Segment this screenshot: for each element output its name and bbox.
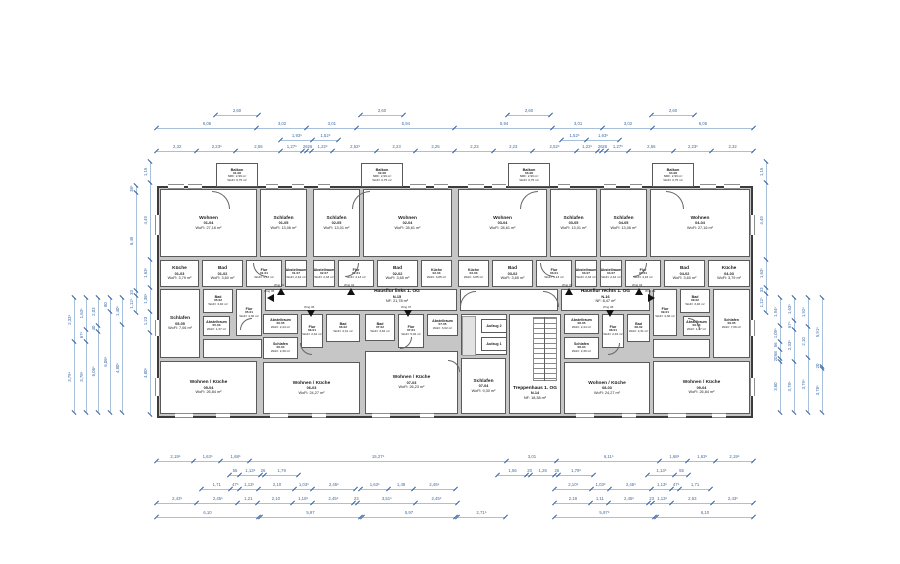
window [168,184,184,189]
elevator-shaft [462,316,476,356]
dimension-value: 1,63⁵ [786,298,795,320]
dimension-value: 1,40⁵ [114,298,123,324]
dimension-value: 2,25 [416,143,455,152]
dimension-chain: 1,12⁵336,4938⁵ [128,186,137,312]
dimension-value: 5,94 [455,120,553,129]
room-abstellraum-08-05: Abstellraum08-05WoFl: 2,44 m² [564,314,599,334]
dimension-value: 1,27⁵ [281,143,303,152]
window [700,184,716,189]
room-area-value: WoFl: 13,06 m² [271,226,297,231]
dimension-value: 1,38⁵ [142,287,151,311]
dimension-chain: 6,10 [157,509,258,518]
dimension-value: 1,79⁵ [559,467,593,476]
dimension-value: 1,03⁵ [295,481,313,490]
dimension-value: 3,01 [307,120,357,129]
dimension-value: 2,60 [361,107,403,116]
room-k-che-02-03: Küche02-03WoFl: 3,85 m² [421,260,452,287]
room-bad-08-02: Bad08-02WoFl: 4,31 m² [627,314,650,342]
dimension-value: 1,71 [202,481,231,490]
dimension-chain: 1,56201,26261,79⁵ [498,467,593,476]
room-area [653,339,710,358]
dimension-chain: 2,322,23⁵2,561,27⁵26261,22⁵2,52⁵2,232,25… [157,143,753,152]
dimension-value: 1,92⁵ [800,298,809,326]
room-area-value: WoFl: 1,37 m² [207,328,226,332]
dimension-value: 1,15 [758,162,767,182]
room-area-value: WoFl: 4,30 m² [655,315,674,319]
dimension-chain: 4,80⁵1,40⁵ [114,298,123,412]
dimension-value: 2,60 [508,107,550,116]
room-bad-01-02: Bad01-02WoFl: 3,60 m² [202,260,243,287]
window [312,413,326,418]
window [175,413,193,418]
hausflur-links [265,289,457,311]
entrance-triangle-icon [635,288,643,295]
dimension-value: 3,51⁵ [358,495,416,504]
dimension-value: 1,63⁵ [194,453,222,462]
room-area-value: WoFl: 2,33 m² [314,276,333,280]
dimension-value: 2,23⁵ [674,143,713,152]
dimension-chain: 1,13⁵55 [648,467,688,476]
room-wohnen-02-04: Wohnen02-04WoFl: 28,61 m² [363,189,452,257]
dimension-chain: 1,12⁵331,63⁵4,491,15 [758,162,767,312]
room-wohnen-k-che-08-03: Wohnen / Küche08-03WoFl: 24,27 m² [564,362,650,414]
dimension-chain: 2,10⁵1,03⁵2,45⁵1,13⁵47⁵1,71 [555,481,710,490]
room-area-value: WoFl: 3,85 m² [464,276,483,280]
window [576,413,594,418]
dimension-value: 1,13⁵ [652,481,672,490]
dimension-chain: 551,13⁵261,79 [230,467,298,476]
window [372,413,390,418]
dimension-value: 1,63⁵ [688,453,716,462]
entrance-label: Wng 04 [632,283,642,287]
room-area-value: WoFl: 24,27 m² [299,391,325,396]
balcony-02-08: Balkon02-08NRF: 2,99 m²WoFl: 0,75 m² [361,163,403,187]
dimension-value: 3,78⁵ [78,341,87,412]
window [188,184,202,189]
dimension-value: 2,45⁵ [414,481,455,490]
balcony-area: WoFl: 0,75 m² [663,179,682,183]
dimension-value: 2,03 [90,298,99,325]
room-area-value: WoFl: 3,85 m² [427,276,446,280]
dimension-value: 2,45⁵ [197,495,238,504]
dimension-value: 55 [675,467,688,476]
entrance-label: Wng 01 [274,283,284,287]
dimension-value: 80 [102,298,111,311]
room-bad-02-02: Bad02-02WoFl: 3,65 m² [377,260,418,287]
dimension-value: 6,05 [157,120,257,129]
window [292,184,304,189]
room-area-value: WoFl: 2,30 m² [271,350,290,354]
dimension-value: 2,56 [629,143,674,152]
dimension-value: 1,79 [265,467,298,476]
dimension-value: 3,02 [603,120,653,129]
entrance-triangle-icon [267,294,274,302]
window [492,184,506,189]
dimension-chain: 6,06⁵402,03 [90,298,99,412]
balcony-area: WoFl: 0,75 m² [372,179,391,183]
dimension-value: 5,97 [261,509,360,518]
dimension-value: 2,56 [236,143,281,152]
room-area-value: WoFl: 2,30 m² [572,350,591,354]
window [318,184,330,189]
entrance-triangle-icon [307,310,315,317]
room-k-che-01-03: Küche01-03WoFl: 3,79 m² [160,260,199,287]
dimension-chain: 1,7147⁵1,13⁵2,101,03⁵2,45⁵ [202,481,355,490]
room-area-value: WoFl: 13,01 m² [324,226,350,231]
room-abstellraum-02-07: Abstellraum02-07WoFl: 2,33 m² [313,260,335,287]
dimension-value: 1,18⁵ [293,495,313,504]
dimension-chain: 2,71⁵ [458,509,505,518]
dimension-value: 1,13⁵ [240,481,259,490]
window [750,215,755,235]
room-area-value: WoFl: 9,30 m² [472,389,496,394]
dimension-chain: 1,93⁵1,52⁵ [281,132,338,141]
dimension-value: 2,10⁵ [555,481,592,490]
dimension-value: 2,23 [377,143,416,152]
room-abstellraum-05-03: Abstellraum05-03WoFl: 1,37 m² [203,316,230,336]
room-area-value: WoFl: 2,44 m² [572,326,591,330]
room-area-value: WoFl: 4,13 m² [544,276,563,280]
dimension-value: 3,79⁵ [800,357,809,412]
dimension-chain: 6,10 [657,509,753,518]
dimension-value: 1,63⁵ [758,259,767,287]
window [270,413,288,418]
dimension-value: 6,10 [157,509,258,518]
dimension-value: 6,49 [128,192,137,290]
entrance-triangle-icon [277,288,285,295]
dimension-chain: 3,79⁵2,33⁵ [66,298,75,412]
room-bad-06-02: Bad06-02WoFl: 4,31 m² [326,314,360,342]
dimension-value: 1,52⁵ [313,132,338,141]
dimension-value: 1,68⁵ [660,453,688,462]
room-area-value: WoFl: 13,06 m² [611,226,637,231]
room-abstellraum-06-05: Abstellraum06-05WoFl: 2,44 m² [263,314,298,334]
dimension-value: 6,10 [657,509,753,518]
room-schlafen-05-05: Schlafen05-05WoFl: 7,06 m² [160,289,200,358]
window [630,184,642,189]
balcony-area: WoFl: 0,75 m² [227,179,246,183]
dimension-value: 5,97 [363,509,455,518]
room-area-value: WoFl: 3,40 m² [685,303,704,307]
room-abstellraum-04-07: Abstellraum04-07WoFl: 2,42 m² [600,260,622,287]
room-area-value: WoFl: 3,65 m² [386,276,410,281]
dimension-value: 2,52⁵ [333,143,377,152]
entrance-triangle-icon [606,310,614,317]
dimension-value: 2,10 [800,326,809,357]
dimension-value: 2,10 [258,495,293,504]
window [155,320,160,336]
dimension-value: 2,19⁵ [157,453,194,462]
dimension-value: 6,11⁵ [557,453,660,462]
room-wohnen-k-che-09-04: Wohnen / Küche09-04WoFl: 26,84 m² [653,361,750,414]
dimension-value: 2,60 [652,107,694,116]
dimension-value: 4,49 [758,182,767,259]
dimension-value: 2,33⁵ [786,329,795,361]
dimension-value: 2,60 [216,107,258,116]
dimension-value: 1,49 [389,481,414,490]
entrance-label: Wng 07 [401,305,411,309]
dimension-chain: 2,60 [652,107,694,116]
room-area-value: WoFl: 27,16 m² [687,226,713,231]
dimension-value: 1,52⁵ [562,132,587,141]
dimension-chain: 2,181,112,45⁵231,13⁵2,532,43⁵ [555,495,753,504]
dimension-value: 3,79⁵ [66,341,75,412]
entrance-label: Wng 09 [645,289,655,293]
balcony-01-08: Balkon01-08NRF: 2,99 m²WoFl: 0,75 m² [216,163,258,187]
dimension-value: 1,68⁵ [221,453,249,462]
dimension-value: 2,33⁵ [66,298,75,341]
dimension-value: 5,91⁵ [814,298,823,366]
balcony-03-08: Balkon03-08NRF: 2,99 m²WoFl: 0,75 m² [508,163,550,187]
window [668,413,686,418]
dimension-value: 2,43⁵ [713,495,753,504]
room-area-value: WoFl: 4,31 m² [629,330,648,334]
dimension-chain: 6,053,023,015,945,943,013,026,05 [157,120,753,129]
room-area-value: WoFl: 24,27 m² [594,391,620,396]
dimension-value: 1,63⁵ [78,298,87,329]
dimension-chain: 5,97 [363,509,455,518]
elevator-aufzug1: Aufzug 1 [481,337,507,351]
dimension-value: 3,78⁵ [814,368,823,412]
dimension-value: 5,97⁵ [555,509,654,518]
room-area-value: WoFl: 26,23 m² [399,385,425,390]
room-area-value: WoFl: 3,62 m² [370,330,389,334]
dimension-value: 3,01 [553,120,603,129]
room-area [203,339,262,358]
dimension-value: 1,12⁵ [128,295,137,312]
window [622,413,636,418]
dimension-value: 6,05 [653,120,753,129]
dimension-value: 1,56 [498,467,527,476]
dimension-value: 3,60 [772,361,781,412]
dimension-chain: 2,60 [508,107,550,116]
dimension-value: 3,02 [257,120,307,129]
dimension-value: 1,23 [142,311,151,332]
room-schlafen-03-05: Schlafen03-05WoFl: 13,01 m² [550,189,597,257]
dimension-chain: 1,63⁵1,492,45⁵ [361,481,455,490]
dimension-value: 1,03⁵ [592,481,610,490]
room-area-value: WoFl: 7,06 m² [722,326,741,330]
room-area-value: WoFl: 26,84 m² [689,390,715,395]
dimension-chain: 4,80⁵1,231,38⁵1,63⁵4,491,15 [142,162,151,414]
dimension-chain: 2,60 [361,107,403,116]
floor-plan-sheet: Wohnen01-04WoFl: 27,16 m²Schlafen01-05Wo… [0,0,900,564]
window [216,413,230,418]
dimension-value: 1,93⁵ [281,132,313,141]
window [712,413,726,418]
room-k-che-04-03: Küche04-03WoFl: 3,79 m² [708,260,750,287]
room-area-value: WoFl: 3,79 m² [168,276,192,281]
dimension-value: 15,27⁵ [250,453,507,462]
dimension-value: 1,27⁵ [607,143,629,152]
room-area-value: WoFl: 4,31 m² [333,330,352,334]
room-area-value: WoFl: 13,01 m² [561,226,587,231]
dimension-value: 1,09⁵ [772,326,781,341]
window [468,184,484,189]
window [750,378,755,396]
dimension-value: 4,80⁵ [114,324,123,412]
dimension-value: 1,13⁵ [648,467,675,476]
entrance-triangle-icon [565,288,573,295]
room-schlafen-01-05: Schlafen01-05WoFl: 13,06 m² [260,189,307,257]
dimension-value: 1,22⁵ [312,143,333,152]
window [604,184,616,189]
window [155,378,160,396]
balcony-area: WoFl: 0,75 m² [519,179,538,183]
elevator-aufzug2: Aufzug 2 [481,319,507,333]
balcony-04-08: Balkon04-08NRF: 2,99 m²WoFl: 0,75 m² [652,163,694,187]
window [266,184,278,189]
entrance-label: Wng 05 [264,289,274,293]
dimension-value: 6,06⁵ [90,331,99,412]
entrance-label: Wng 08 [603,305,613,309]
entrance-triangle-icon [347,288,355,295]
room-bad-07-02: Bad07-02WoFl: 3,62 m² [365,314,395,341]
dimension-chain: 3,78⁵67⁵1,63⁵ [78,298,87,412]
dimension-value: 3,01 [507,453,558,462]
dimension-value: 2,45⁵ [610,481,653,490]
dimension-value: 1,26 [531,467,555,476]
room-area-value: WoFl: 2,33 m² [576,276,595,280]
room-wohnen-k-che-07-03: Wohnen / Küche07-03WoFl: 26,23 m² [365,351,458,414]
dimension-value: 2,32 [712,143,752,152]
dimension-value: 1,22⁵ [577,143,598,152]
dimension-value: 2,10 [259,481,295,490]
room-area-value: WoFl: 3,40 m² [208,303,227,307]
room-bad-04-02: Bad04-02WoFl: 3,60 m² [664,260,705,287]
room-k-che-03-03: Küche03-03WoFl: 3,85 m² [458,260,489,287]
dimension-chain: 3,602068561,09⁵1,94⁵ [772,298,781,412]
dimension-chain: 3,78⁵205,91⁵ [814,298,823,412]
room-bad-09-02: Bad09-02WoFl: 3,40 m² [680,289,710,313]
room-area-value: WoFl: 28,61 m² [490,226,516,231]
room-schlafen-09-05: Schlafen09-05WoFl: 7,06 m² [713,289,750,358]
dimension-chain: 3,78⁵2,33⁵67⁵1,63⁵ [786,298,795,412]
room-schlafen-08-04: Schlafen08-04WoFl: 2,30 m² [564,337,599,359]
room-wohnen-k-che-05-04: Wohnen / Küche05-04WoFl: 26,84 m² [160,361,257,414]
room-area-value: WoFl: 2,42 m² [601,276,620,280]
dimension-value: 1,63⁵ [361,481,389,490]
dimension-value: 6,06⁵ [102,311,111,412]
dimension-chain: 2,43⁵2,45⁵1,212,101,18⁵2,45⁵233,51⁵2,45⁵ [157,495,457,504]
elevator-label: Aufzug 1 [486,342,501,346]
dimension-value: 1,15 [142,162,151,182]
room-area-value: WoFl: 3,79 m² [717,276,741,281]
dimension-value: 1,13⁵ [653,495,672,504]
dimension-value: 2,18 [555,495,591,504]
window [410,184,426,189]
dimension-value: 2,45⁵ [416,495,457,504]
room-area-value: WoFl: 2,42 m² [603,333,622,337]
room-bad-03-02: Bad03-02WoFl: 3,65 m² [492,260,533,287]
dimension-value: 4,80⁵ [142,332,151,414]
entrance-label: Wng 03 [562,283,572,287]
entrance-label: Wng 06 [304,305,314,309]
window [558,184,570,189]
room-abstellraum-03-07: Abstellraum03-07WoFl: 2,33 m² [575,260,597,287]
dimension-value: 1,63⁵ [142,259,151,287]
window [750,320,755,336]
window [434,184,448,189]
room-area-value: WoFl: 2,42 m² [286,276,305,280]
room-area-value: WoFl: 2,44 m² [271,326,290,330]
dimension-chain: 5,97⁵ [555,509,654,518]
stair-divider [544,317,545,381]
dimension-value: 2,19⁵ [716,453,753,462]
dimension-chain: 2,60 [216,107,258,116]
entrance-triangle-icon [404,310,412,317]
dimension-value: 1,13⁵ [240,467,261,476]
dimension-value: 1,12⁵ [758,293,767,312]
stair-flight [533,317,557,381]
room-bad-05-02: Bad05-02WoFl: 3,40 m² [203,289,233,313]
dimension-value: 2,52⁵ [533,143,577,152]
room-schlafen-06-04: Schlafen06-04WoFl: 2,30 m² [263,337,298,359]
dimension-chain: 5,97 [261,509,360,518]
room-area-value: WoFl: 3,02 m² [433,327,452,331]
room-area-value: WoFl: 7,06 m² [168,326,192,331]
room-area-value: WoFl: 3,60 m² [211,276,235,281]
room-wohnen-01-04: Wohnen01-04WoFl: 27,16 m² [160,189,257,257]
room-flur-09-01: Flur09-01WoFl: 4,30 m² [653,289,677,336]
dimension-value: 1,94⁵ [772,298,781,325]
room-area-value: WoFl: 27,16 m² [196,226,222,231]
dimension-value: 2,32 [157,143,197,152]
dimension-chain: 6,06⁵80 [102,298,111,412]
room-area-value: WoFl: 3,65 m² [501,276,525,281]
dimension-value: 4,49 [142,182,151,259]
dimension-value: 2,45⁵ [313,495,354,504]
dimension-value: 1,71 [680,481,710,490]
dimension-value: 3,78⁵ [786,361,795,412]
room-schlafen-07-04: Schlafen07-04WoFl: 9,30 m² [461,358,506,414]
dimension-value: 2,45⁵ [313,481,355,490]
room-schlafen-04-05: Schlafen04-05WoFl: 13,06 m² [600,189,647,257]
dimension-value: 2,53 [672,495,713,504]
room-area-value: WoFl: 26,84 m² [196,390,222,395]
room-area-value: WoFl: 2,42 m² [302,333,321,337]
room-area-value: WoFl: 3,60 m² [673,276,697,281]
dimension-value: 2,71⁵ [458,509,505,518]
room-area-value: WoFl: 28,61 m² [395,226,421,231]
dimension-chain: 2,19⁵1,63⁵1,68⁵15,27⁵3,016,11⁵1,68⁵1,63⁵… [157,453,753,462]
dimension-value: 38⁵ [128,186,137,192]
window [420,413,434,418]
room-wohnen-04-04: Wohnen04-04WoFl: 27,16 m² [650,189,750,257]
entrance-triangle-icon [648,294,655,302]
dimension-chain: 1,52⁵1,93⁵ [562,132,619,141]
dimension-value: 1,93⁵ [587,132,619,141]
room-wohnen-k-che-06-03: Wohnen / Küche06-03WoFl: 24,27 m² [263,362,360,414]
dimension-chain: 3,79⁵2,101,92⁵ [800,298,809,412]
window [155,215,160,235]
dimension-value: 2,23⁵ [197,143,236,152]
dimension-value: 2,23 [455,143,494,152]
elevator-label: Aufzug 2 [486,324,501,328]
dimension-value: 2,45⁵ [609,495,649,504]
window [724,184,740,189]
room-abstellraum-01-07: Abstellraum01-07WoFl: 2,42 m² [285,260,307,287]
dimension-value: 5,94 [357,120,455,129]
entrance-label: Wng 02 [344,283,354,287]
dimension-value: 2,43⁵ [157,495,197,504]
room-abstellraum-07-05: Abstellraum07-05WoFl: 3,02 m² [427,314,458,336]
room-schlafen-02-05: Schlafen02-05WoFl: 13,01 m² [313,189,360,257]
dimension-value: 2,23 [494,143,533,152]
